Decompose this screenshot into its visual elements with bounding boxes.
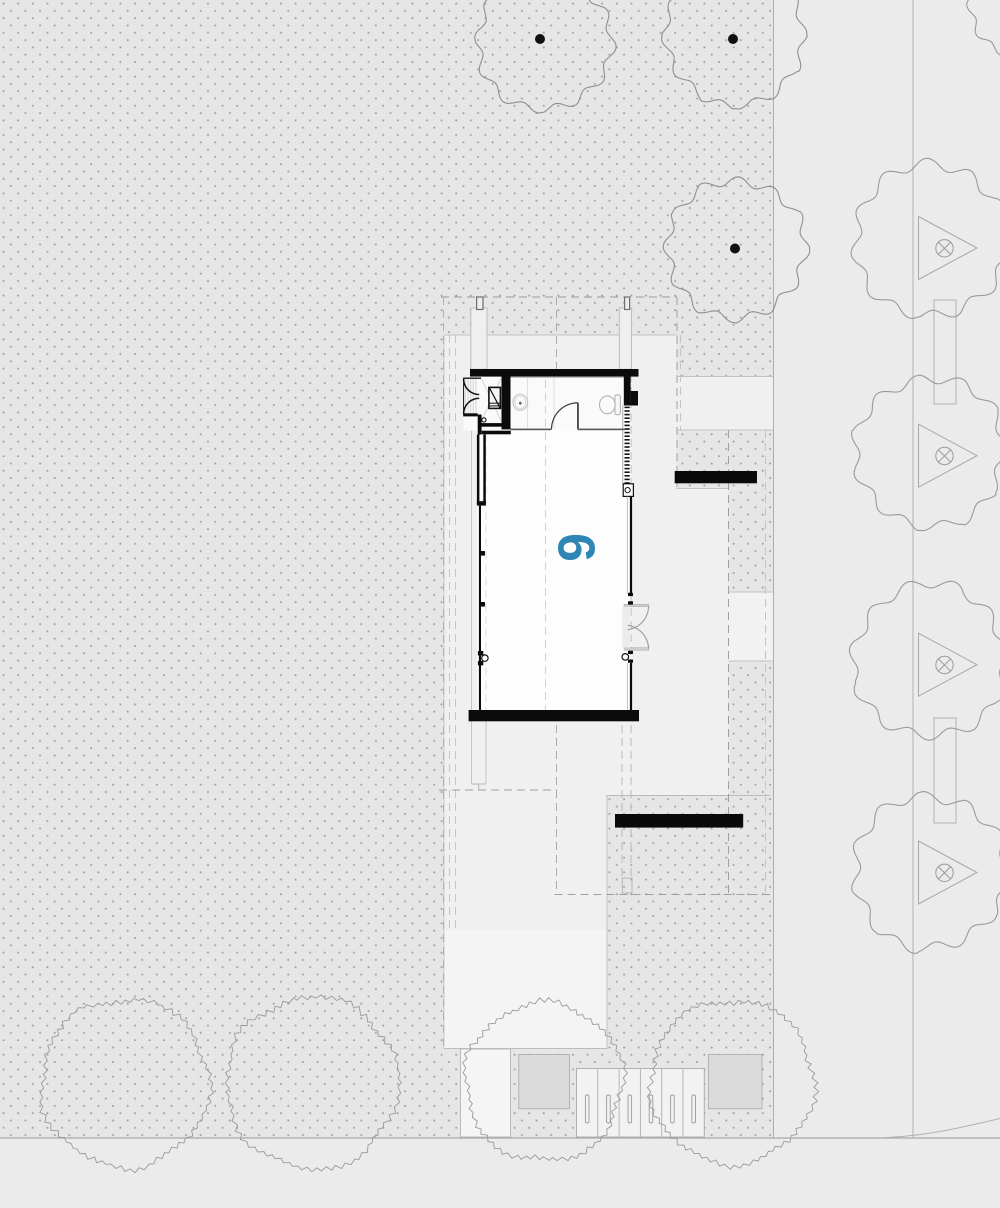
svg-text:6: 6 — [547, 533, 605, 562]
